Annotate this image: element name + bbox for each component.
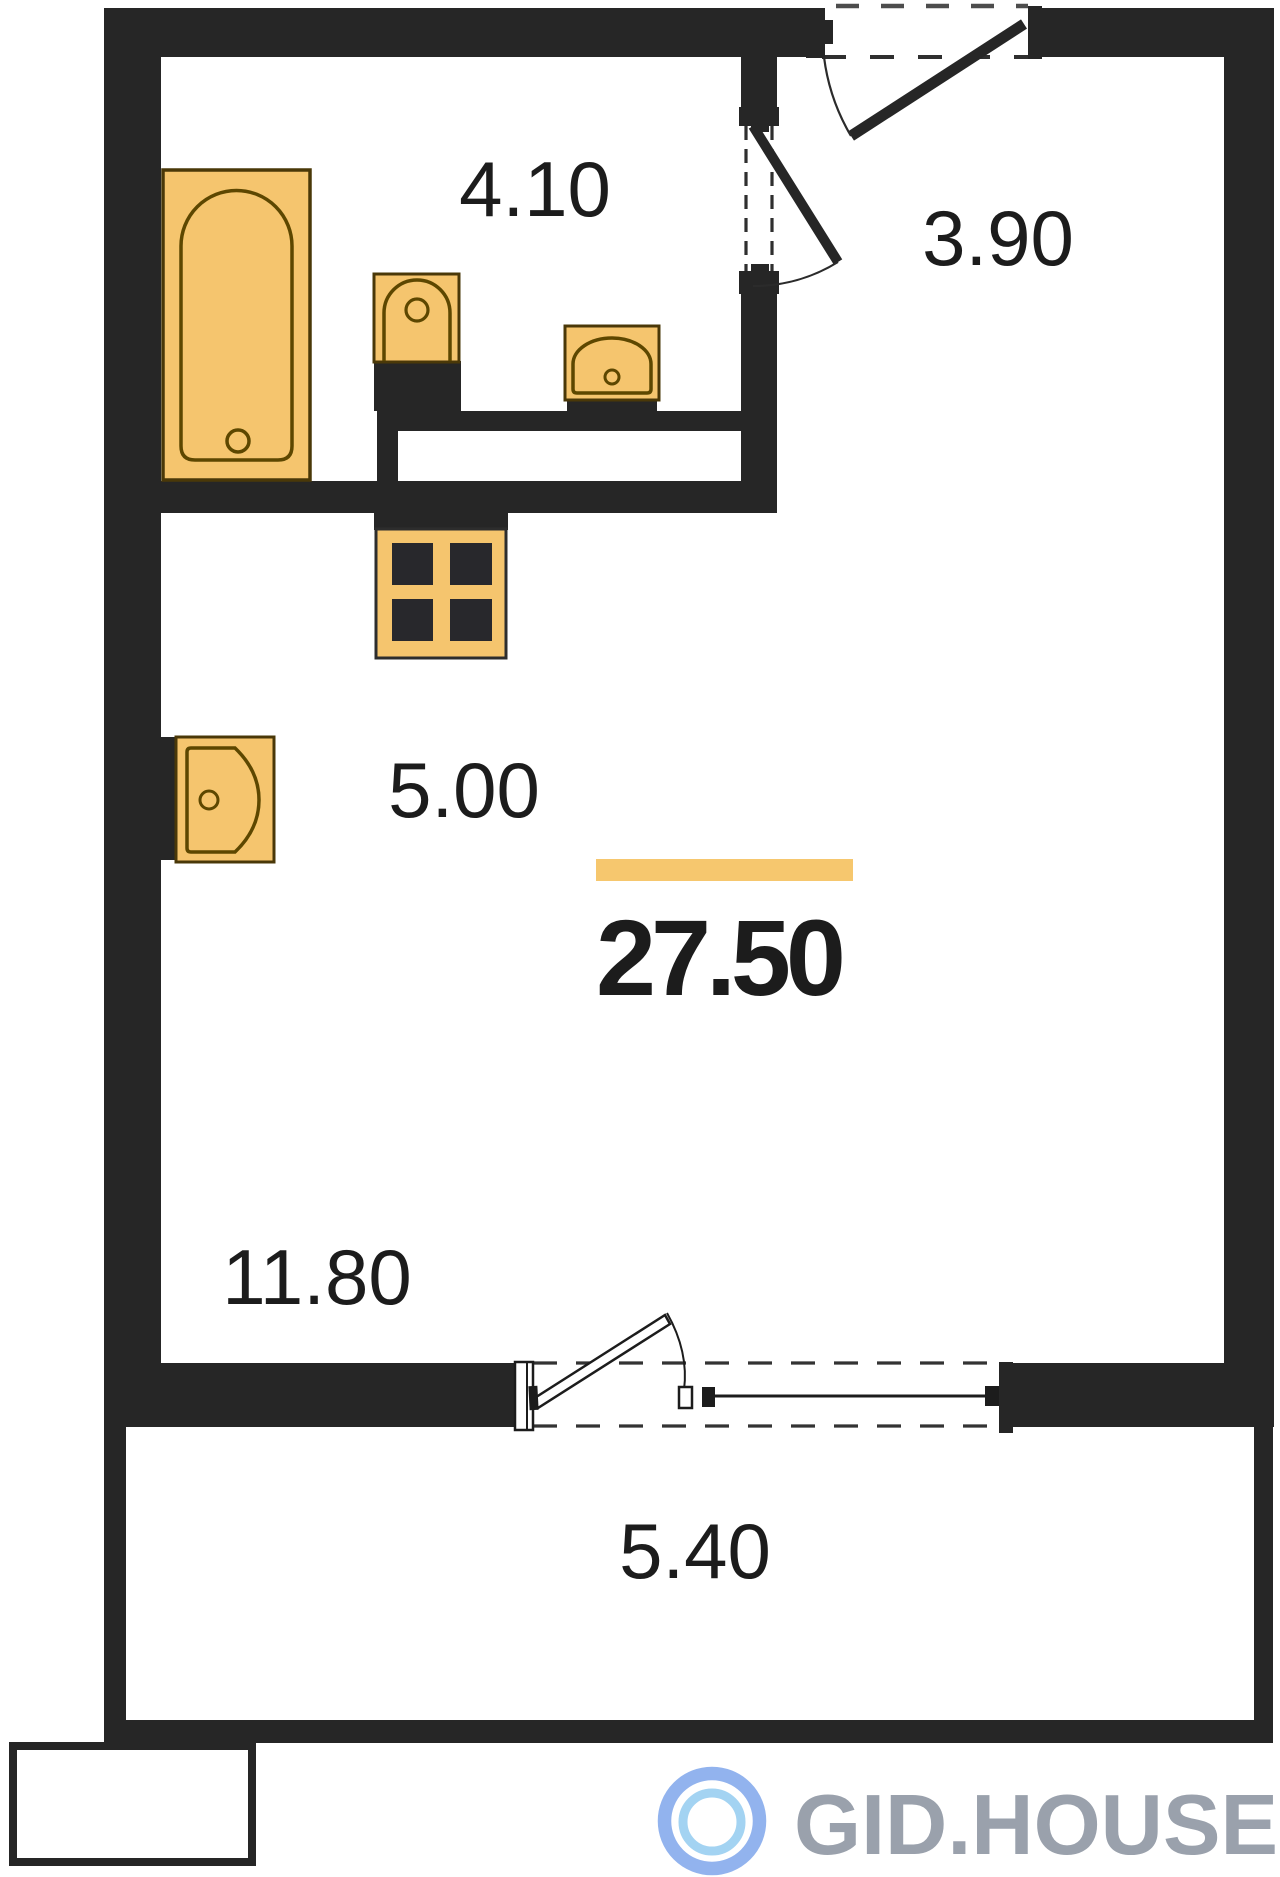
svg-text:3.90: 3.90: [922, 194, 1074, 282]
svg-text:27.50: 27.50: [596, 897, 846, 1018]
svg-text:GID.HOUSE: GID.HOUSE: [794, 1778, 1278, 1873]
svg-text:4.10: 4.10: [459, 145, 611, 233]
svg-text:11.80: 11.80: [222, 1233, 411, 1321]
svg-text:5.00: 5.00: [388, 746, 540, 834]
svg-text:5.40: 5.40: [619, 1507, 771, 1595]
